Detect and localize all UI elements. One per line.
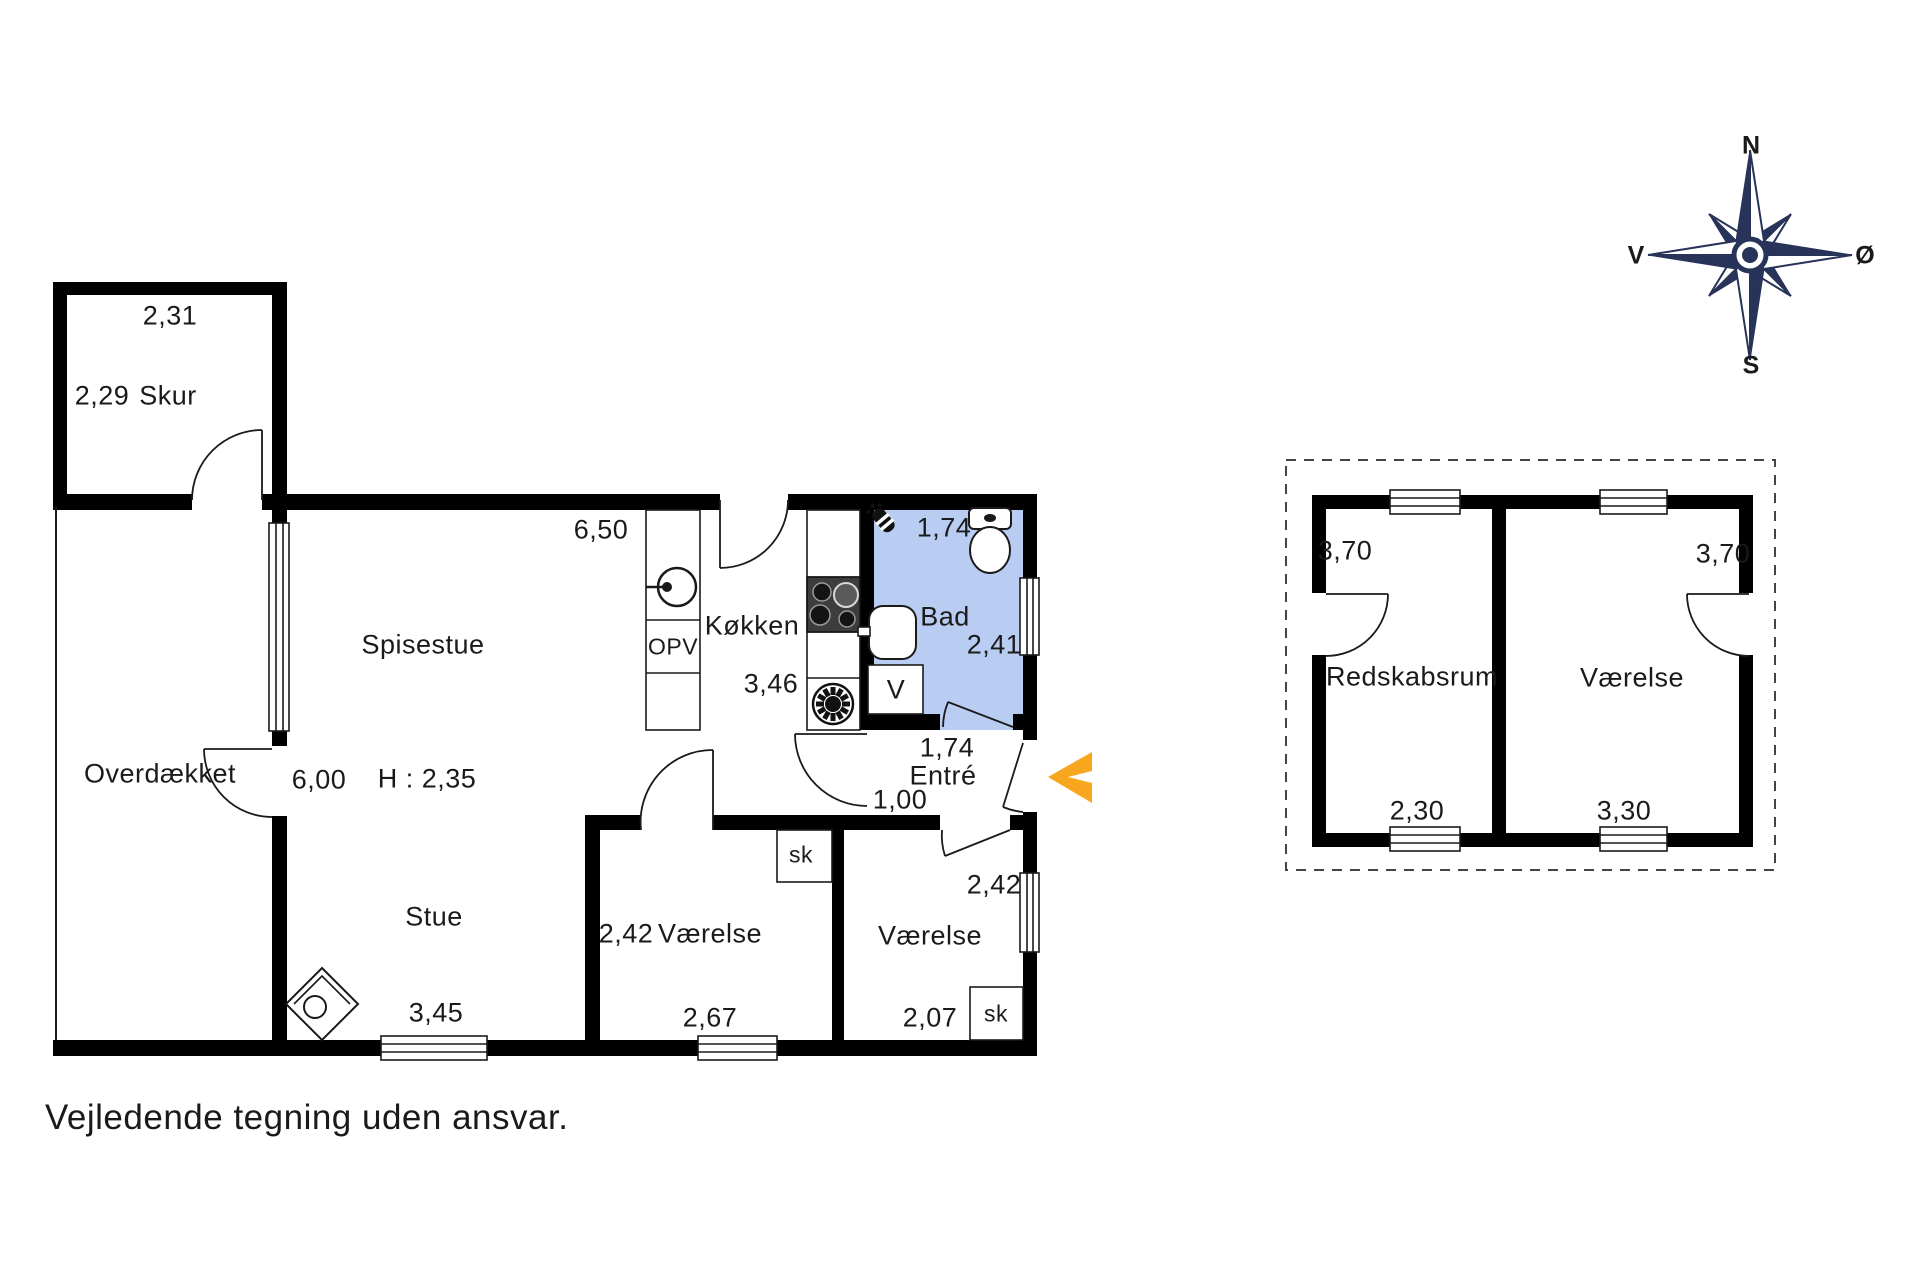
window-stue xyxy=(381,1036,487,1060)
wall-annex-top xyxy=(1312,495,1753,509)
room-label-overdaekket: Overdækket xyxy=(84,759,236,790)
dim-bad-width: 1,74 xyxy=(917,513,972,544)
door-entrance xyxy=(1003,743,1023,812)
room-label-vaerelse2: Værelse xyxy=(878,921,982,952)
entrance-arrow-icon xyxy=(1048,752,1092,803)
stove-icon xyxy=(807,577,860,632)
wall-annex-bottom xyxy=(1312,833,1753,847)
room-label-bad: Bad xyxy=(920,602,970,633)
wall-bath-bottom-1 xyxy=(860,714,940,730)
window-annex-bottom-right xyxy=(1600,827,1667,851)
door-vaerelse2 xyxy=(942,830,1010,856)
dishwasher-label: OPV xyxy=(648,634,698,661)
wall-annex-right-2 xyxy=(1739,655,1753,847)
window-annex-top-right xyxy=(1600,490,1667,514)
wall-bedrooms-top-2 xyxy=(713,815,940,830)
floor-plan-drawing xyxy=(0,0,1920,1279)
dim-koekken-depth: 3,46 xyxy=(744,669,799,700)
dim-redskabsrum-width: 2,30 xyxy=(1390,796,1445,827)
window-vaerelse1 xyxy=(698,1036,777,1060)
window-bad xyxy=(1020,578,1039,655)
dim-vaerelse1-width: 2,67 xyxy=(683,1003,738,1034)
room-label-koekken: Køkken xyxy=(705,611,800,642)
compass-east-label: Ø xyxy=(1855,242,1874,271)
ceiling-height-note: H : 2,35 xyxy=(378,764,477,795)
room-label-skur: Skur xyxy=(139,381,197,412)
wall-left-stub-2 xyxy=(272,731,287,746)
fireplace-icon xyxy=(286,968,358,1040)
window-vaerelse2 xyxy=(1020,873,1039,952)
wall-skur-top xyxy=(53,282,285,295)
room-label-stue: Stue xyxy=(405,902,463,933)
floor-plan-page: 2,31 2,29 Skur Overdækket Spisestue 6,50… xyxy=(0,0,1920,1279)
disclaimer-text: Vejledende tegning uden ansvar. xyxy=(45,1098,568,1138)
wall-top-2 xyxy=(262,494,720,510)
wall-left-lower xyxy=(272,816,287,1042)
window-annex-bottom-left xyxy=(1390,827,1460,851)
dim-spisestue-width: 6,50 xyxy=(574,515,629,546)
dim-vaerelse1-depth: 2,42 xyxy=(599,919,654,950)
dim-skur-depth: 2,29 xyxy=(75,381,130,412)
dim-annex-vaerelse-depth: 3,70 xyxy=(1696,539,1751,570)
door-skur xyxy=(192,430,262,500)
washer-label: V xyxy=(887,675,906,706)
window-annex-top-left xyxy=(1390,490,1460,514)
fan-wheel-icon xyxy=(813,684,853,724)
wall-top-1 xyxy=(53,494,192,510)
toilet-icon xyxy=(969,508,1011,573)
dim-bad-depth: 2,41 xyxy=(967,630,1022,661)
compass-rose-icon xyxy=(1648,150,1852,360)
wall-bedrooms-top-3 xyxy=(1010,815,1037,830)
wall-right-2 xyxy=(1023,655,1037,740)
window-spisestue xyxy=(269,523,289,731)
wall-skur-right xyxy=(272,282,287,507)
closet-label-vaerelse1: sk xyxy=(789,842,813,869)
door-koekken xyxy=(720,500,788,568)
dim-skur-width: 2,31 xyxy=(143,301,198,332)
dim-spisestue-depth: 6,00 xyxy=(292,765,347,796)
wall-annex-left-2 xyxy=(1312,655,1326,847)
compass-west-label: V xyxy=(1628,242,1645,271)
dim-redskabsrum-depth: 3,70 xyxy=(1318,536,1373,567)
dim-vaerelse2-depth: 2,42 xyxy=(967,870,1022,901)
compass-south-label: S xyxy=(1743,352,1760,381)
wall-between-bedrooms xyxy=(832,815,844,1040)
room-label-annex-vaerelse: Værelse xyxy=(1580,663,1684,694)
door-hall xyxy=(795,734,867,806)
room-label-vaerelse1: Værelse xyxy=(658,919,762,950)
wall-bottom xyxy=(53,1040,1037,1056)
wall-skur-left xyxy=(53,282,67,507)
dim-vaerelse2-width: 2,07 xyxy=(903,1003,958,1034)
dim-entre-width: 1,74 xyxy=(920,733,975,764)
dim-annex-vaerelse-width: 3,30 xyxy=(1597,796,1652,827)
dim-hall-width: 1,00 xyxy=(873,785,928,816)
compass-north-label: N xyxy=(1742,132,1760,161)
room-label-spisestue: Spisestue xyxy=(361,630,484,661)
closet-label-vaerelse2: sk xyxy=(984,1001,1008,1028)
door-vaerelse1 xyxy=(641,750,713,830)
door-annex-right xyxy=(1687,594,1749,656)
dim-stue-width: 3,45 xyxy=(409,998,464,1029)
wall-bath-bottom-2 xyxy=(1013,714,1023,730)
room-label-redskabsrum: Redskabsrum xyxy=(1326,662,1498,693)
door-annex-left xyxy=(1326,594,1388,656)
wall-right-1 xyxy=(1023,494,1037,578)
